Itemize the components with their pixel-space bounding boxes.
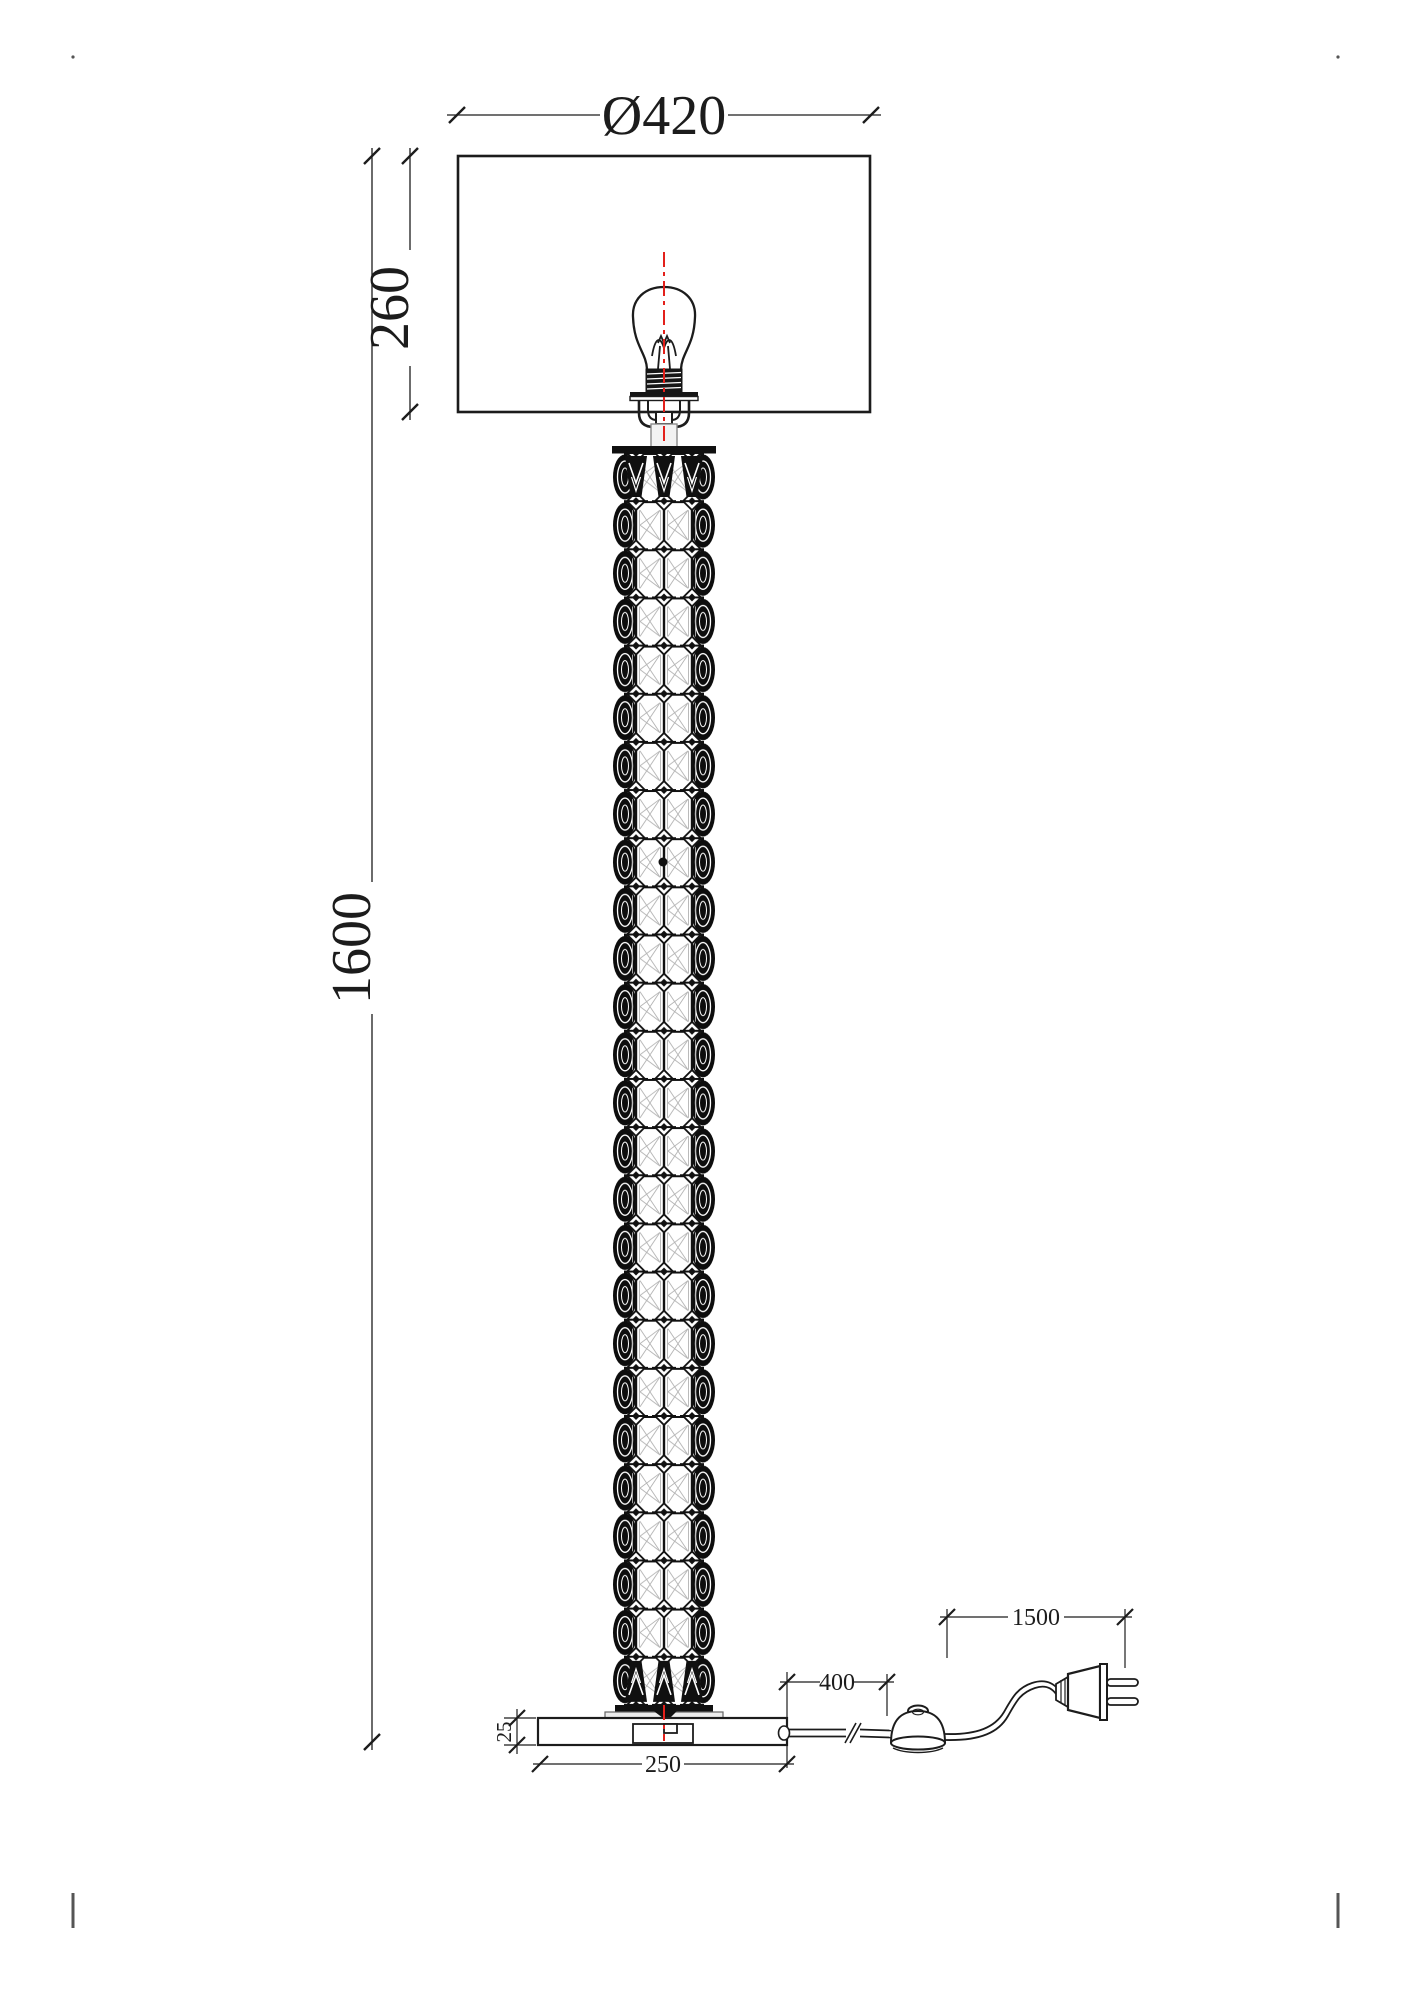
dimension-lamp-height: 1600 (321, 148, 383, 1750)
page-mark-top-right (1336, 55, 1339, 58)
column-top-plate (612, 446, 716, 454)
light-bulb (633, 287, 695, 369)
plug-strain-relief (1056, 1677, 1068, 1707)
label-shade-diameter: Ø420 (602, 85, 726, 147)
bulb-glass (633, 287, 695, 369)
column-icicle-row (625, 1661, 703, 1702)
dimension-shade-height: 260 (359, 148, 421, 420)
cord-break-symbol (845, 1723, 861, 1743)
floor-lamp-dimension-drawing: Ø420 260 1600 (0, 0, 1413, 2000)
dimension-shade-diameter: Ø420 (447, 85, 881, 147)
cord-to-plug (945, 1681, 1058, 1740)
column-crown-row (625, 456, 703, 497)
plug-body (1068, 1666, 1100, 1718)
label-base-width: 250 (645, 1752, 681, 1778)
label-lamp-height: 1600 (321, 892, 383, 1004)
column-center-dot (659, 858, 668, 867)
foot-switch (891, 1706, 945, 1753)
cord-exit-bushing (779, 1726, 790, 1740)
dimension-cord-length: 1500 (939, 1605, 1133, 1668)
label-shade-height: 260 (359, 266, 421, 350)
dimension-base-width: 250 (532, 1752, 795, 1778)
page-mark-top-left (71, 55, 74, 58)
plug-pin-bottom (1107, 1698, 1138, 1705)
column-pattern (612, 453, 716, 1705)
drawing-canvas: Ø420 260 1600 (0, 0, 1413, 2000)
power-plug (1056, 1664, 1138, 1720)
page-mark-bottom-left (72, 1893, 75, 1928)
plug-pin-top (1107, 1679, 1138, 1686)
crystal-column (612, 446, 716, 1712)
base-recess-notch (664, 1724, 677, 1733)
label-cord-length: 1500 (1012, 1605, 1060, 1631)
page-mark-bottom-right (1337, 1893, 1340, 1928)
lamp-base (538, 1709, 787, 1745)
switch-base (891, 1737, 945, 1750)
plug-face (1100, 1664, 1107, 1720)
label-base-thickness: 25 (492, 1722, 516, 1743)
label-base-to-switch: 400 (819, 1670, 855, 1696)
dimension-base-to-switch: 400 (779, 1670, 895, 1768)
dimension-base-thickness: 25 (492, 1709, 536, 1754)
